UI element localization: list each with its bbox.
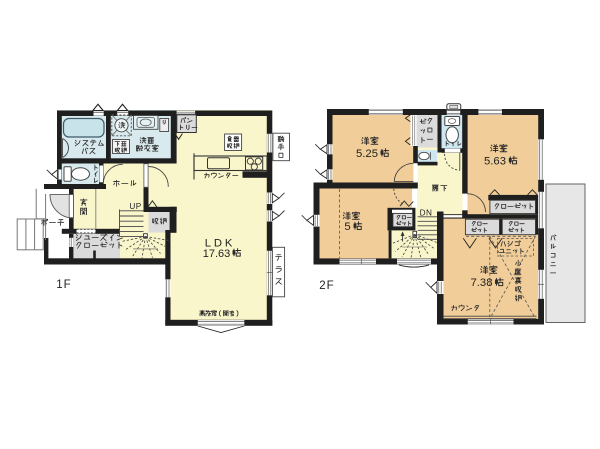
svg-text:DN: DN <box>420 208 433 217</box>
svg-text:17.63: 17.63 <box>203 248 231 260</box>
svg-text:5: 5 <box>344 221 350 233</box>
svg-text:5.25: 5.25 <box>356 148 378 160</box>
svg-text:5.63: 5.63 <box>484 156 506 168</box>
svg-text:2F: 2F <box>319 280 334 292</box>
svg-text:1F: 1F <box>56 279 71 291</box>
svg-text:UP: UP <box>129 202 141 211</box>
svg-text:7.38: 7.38 <box>471 277 493 289</box>
